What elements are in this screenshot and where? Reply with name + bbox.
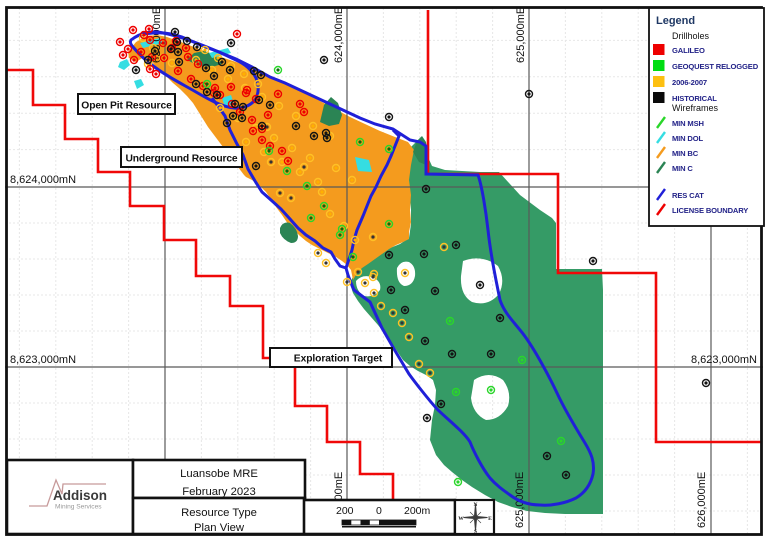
svg-text:625,000mE: 625,000mE <box>515 7 527 63</box>
svg-text:MIN MSH: MIN MSH <box>672 119 704 128</box>
svg-text:HISTORICAL: HISTORICAL <box>672 94 717 103</box>
svg-text:0: 0 <box>376 505 382 517</box>
svg-text:8,623,000mN: 8,623,000mN <box>691 354 757 366</box>
svg-text:8,623,000mN: 8,623,000mN <box>10 354 76 366</box>
svg-text:200m: 200m <box>404 505 431 517</box>
svg-text:MIN C: MIN C <box>672 164 693 173</box>
svg-text:E: E <box>488 516 492 522</box>
svg-text:200: 200 <box>336 505 354 517</box>
svg-text:RES CAT: RES CAT <box>672 191 704 200</box>
svg-text:Wireframes: Wireframes <box>672 103 719 113</box>
svg-text:Resource Type: Resource Type <box>181 507 257 519</box>
svg-text:MIN DOL: MIN DOL <box>672 134 704 143</box>
svg-text:GEOQUEST RELOGGED: GEOQUEST RELOGGED <box>672 62 759 71</box>
svg-text:624,000mE: 624,000mE <box>333 7 345 63</box>
svg-text:626,000mE: 626,000mE <box>696 472 708 528</box>
svg-text:8,624,000mN: 8,624,000mN <box>10 174 76 186</box>
svg-text:February 2023: February 2023 <box>182 486 255 498</box>
svg-text:MIN BC: MIN BC <box>672 149 699 158</box>
svg-text:GALILEO: GALILEO <box>672 46 705 55</box>
svg-text:S: S <box>474 529 477 535</box>
svg-text:2006-2007: 2006-2007 <box>672 78 707 87</box>
svg-text:Drillholes: Drillholes <box>672 31 710 41</box>
svg-text:Plan View: Plan View <box>194 522 245 534</box>
svg-text:Luansobe MRE: Luansobe MRE <box>180 468 258 480</box>
svg-text:Underground Resource: Underground Resource <box>126 154 238 165</box>
svg-text:Exploration Target: Exploration Target <box>294 354 383 365</box>
svg-text:LICENSE BOUNDARY: LICENSE BOUNDARY <box>672 206 748 215</box>
svg-text:W: W <box>458 516 464 522</box>
svg-text:Mining Services: Mining Services <box>55 504 102 511</box>
svg-text:N: N <box>474 502 478 508</box>
svg-text:Open Pit Resource: Open Pit Resource <box>81 101 172 112</box>
svg-text:Addison: Addison <box>53 488 107 503</box>
svg-text:Legend: Legend <box>656 15 695 27</box>
